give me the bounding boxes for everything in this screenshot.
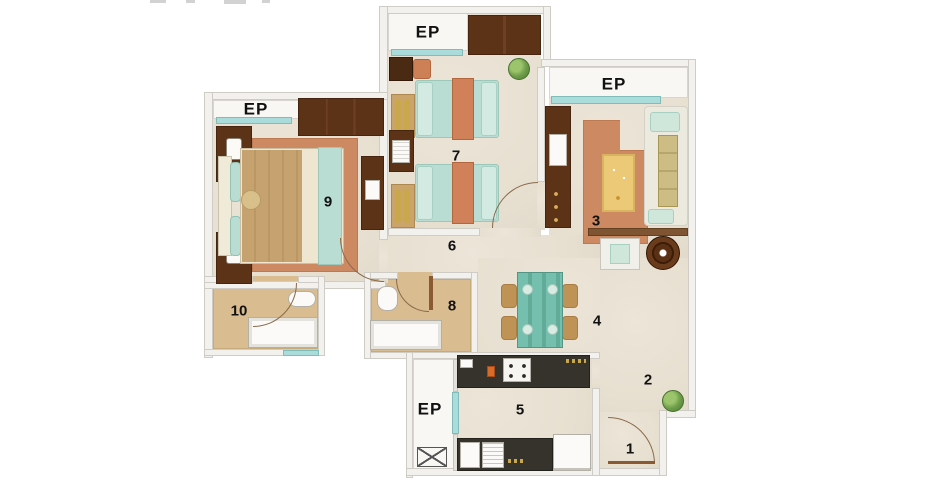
tv (549, 134, 567, 166)
room-label-4: 4 (593, 314, 601, 329)
door-leaf (429, 276, 433, 310)
wall (543, 6, 551, 67)
plate (547, 284, 558, 295)
sofa-cushion (648, 209, 674, 224)
wall (406, 352, 413, 478)
dresser-panel (365, 180, 380, 200)
room-label-3: 3 (592, 214, 600, 229)
window-strip (283, 350, 319, 356)
cropped-edge-artifact (224, 0, 246, 4)
pillow (417, 166, 433, 220)
dining-table (517, 272, 563, 348)
dish-rack (482, 442, 504, 468)
door-opening (592, 359, 600, 390)
room-label-1: 1 (626, 442, 634, 457)
wall (388, 228, 480, 236)
armchair-seat (610, 244, 630, 264)
cabinet (389, 57, 413, 81)
sofa-cushions (658, 135, 678, 207)
stool (413, 59, 431, 79)
bench-cushion (395, 189, 401, 223)
shaft-cross-symbol (417, 447, 447, 467)
ottoman (241, 190, 261, 210)
refrigerator (553, 434, 591, 471)
plate (522, 324, 533, 335)
potted-plant (508, 58, 530, 80)
ep-label-room7: EP (416, 24, 441, 41)
counter-knobs (508, 459, 524, 463)
room-label-9: 9 (324, 195, 332, 210)
wall (537, 67, 545, 182)
wall (541, 59, 696, 67)
wall (592, 388, 600, 476)
ep-label-kitchen: EP (418, 401, 443, 418)
kitchen-sink (460, 442, 480, 468)
stove (503, 358, 531, 382)
floor-plan: EP EP EP EP 1 2 3 4 5 6 7 8 9 10 (0, 0, 940, 490)
coffee-table (602, 154, 635, 212)
counter-knobs (566, 359, 586, 363)
cropped-edge-artifact (262, 0, 270, 3)
door-leaf (608, 461, 655, 464)
ep-label-room3: EP (602, 76, 627, 93)
dining-chair (562, 316, 578, 340)
wall (471, 272, 478, 359)
bathtub (370, 320, 442, 350)
room-label-10: 10 (231, 304, 248, 319)
door-opening (537, 182, 545, 230)
toilet (377, 286, 398, 311)
wall (318, 276, 325, 356)
room-label-8: 8 (448, 299, 456, 314)
room-label-6: 6 (448, 239, 456, 254)
wall (379, 6, 551, 14)
bed-runner (452, 78, 474, 140)
dining-chair (501, 316, 517, 340)
sofa-cushion (650, 112, 680, 132)
wall (688, 59, 696, 418)
window-strip (452, 392, 459, 434)
plate (547, 324, 558, 335)
bench-cushion (404, 189, 410, 223)
tv-unit-lights (552, 190, 560, 224)
laptop (392, 140, 410, 163)
room-label-2: 2 (644, 373, 652, 388)
door-opening (480, 228, 541, 237)
wall (204, 92, 213, 358)
wardrobe (298, 98, 384, 136)
wall (659, 410, 667, 476)
window-strip (551, 96, 661, 104)
wardrobe (468, 15, 541, 55)
ep-label-room9: EP (244, 101, 269, 118)
room-label-5: 5 (516, 403, 524, 418)
window-strip (391, 49, 463, 56)
console-ledge (588, 228, 688, 236)
cropped-edge-artifact (186, 0, 195, 3)
potted-plant (662, 390, 684, 412)
cropped-edge-artifact (150, 0, 166, 3)
pillow (417, 82, 433, 136)
bench-cushion (395, 99, 401, 133)
counter-item (487, 366, 495, 377)
pillow (481, 82, 497, 136)
dining-chair (562, 284, 578, 308)
counter-item (460, 359, 473, 368)
round-side-table (646, 236, 680, 270)
plate (522, 284, 533, 295)
dining-chair (501, 284, 517, 308)
bench-cushion (404, 99, 410, 133)
room-label-7: 7 (452, 149, 460, 164)
bed-runner (452, 162, 474, 224)
